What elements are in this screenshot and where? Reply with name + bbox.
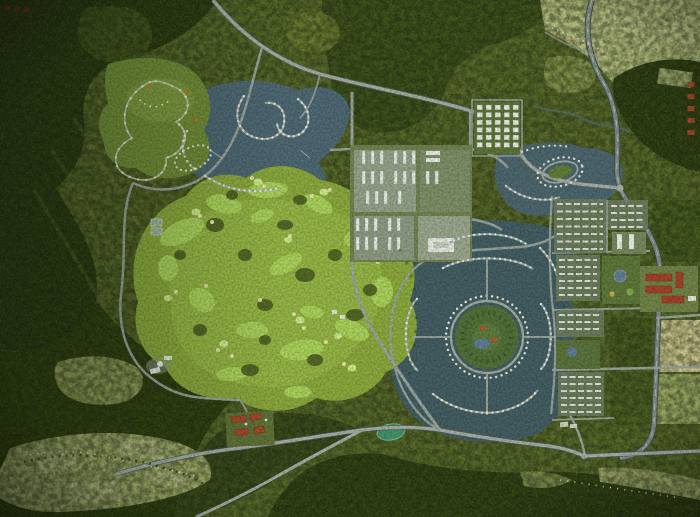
vignette bbox=[0, 0, 700, 517]
masterplan-stage bbox=[0, 0, 700, 517]
layer-atmosphere bbox=[0, 0, 700, 517]
masterplan-svg bbox=[0, 0, 700, 517]
